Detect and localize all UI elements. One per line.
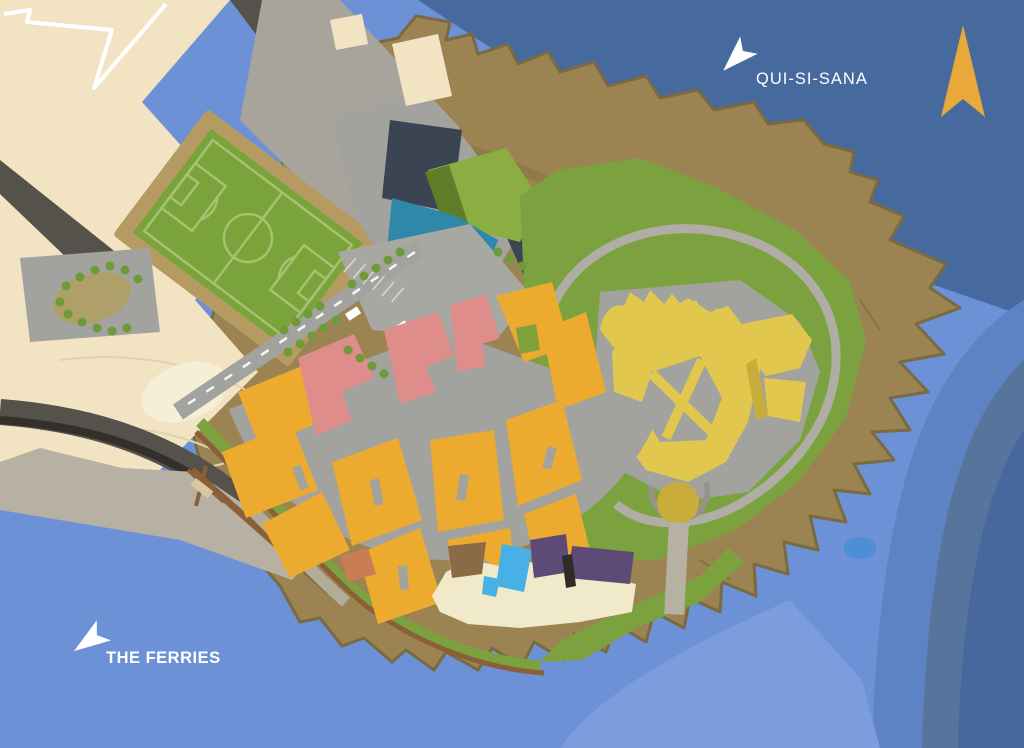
tree	[64, 310, 73, 319]
tree	[106, 262, 115, 271]
tree	[108, 327, 117, 336]
tree	[316, 302, 325, 311]
tree	[368, 362, 377, 371]
tree	[134, 275, 143, 284]
tree	[93, 324, 102, 333]
the-ferries-label: THE FERRIES	[106, 649, 221, 667]
deck-brown-patch	[448, 542, 486, 578]
fort-east-annex	[764, 378, 806, 422]
tree	[494, 248, 503, 257]
tree	[56, 298, 65, 307]
tree	[396, 248, 405, 257]
tree	[360, 272, 369, 281]
tree	[384, 256, 393, 265]
tree	[348, 280, 357, 289]
tree	[356, 354, 365, 363]
tree	[91, 266, 100, 275]
tree	[344, 346, 353, 355]
tree	[280, 326, 289, 335]
tree	[320, 324, 329, 333]
courtyard-green	[516, 324, 540, 354]
tree	[304, 310, 313, 319]
tree	[372, 264, 381, 273]
tree	[308, 332, 317, 341]
tree	[123, 324, 132, 333]
round-bastion	[657, 482, 699, 524]
building-purple	[568, 546, 634, 584]
map-canvas: QUI-SI-SANA THE FERRIES	[0, 0, 1024, 748]
rock-pond	[844, 537, 876, 559]
tree	[121, 266, 130, 275]
tree	[332, 316, 341, 325]
tree	[518, 262, 527, 271]
tree	[78, 318, 87, 327]
qui-si-sana-label: QUI-SI-SANA	[756, 70, 868, 88]
tigne-point-map: QUI-SI-SANA THE FERRIES	[0, 0, 1024, 748]
tree	[284, 348, 293, 357]
tree	[292, 318, 301, 327]
tree	[380, 370, 389, 379]
tree	[76, 273, 85, 282]
tree	[296, 340, 305, 349]
tree	[62, 282, 71, 291]
coast-building	[330, 14, 368, 50]
tree	[506, 255, 515, 264]
